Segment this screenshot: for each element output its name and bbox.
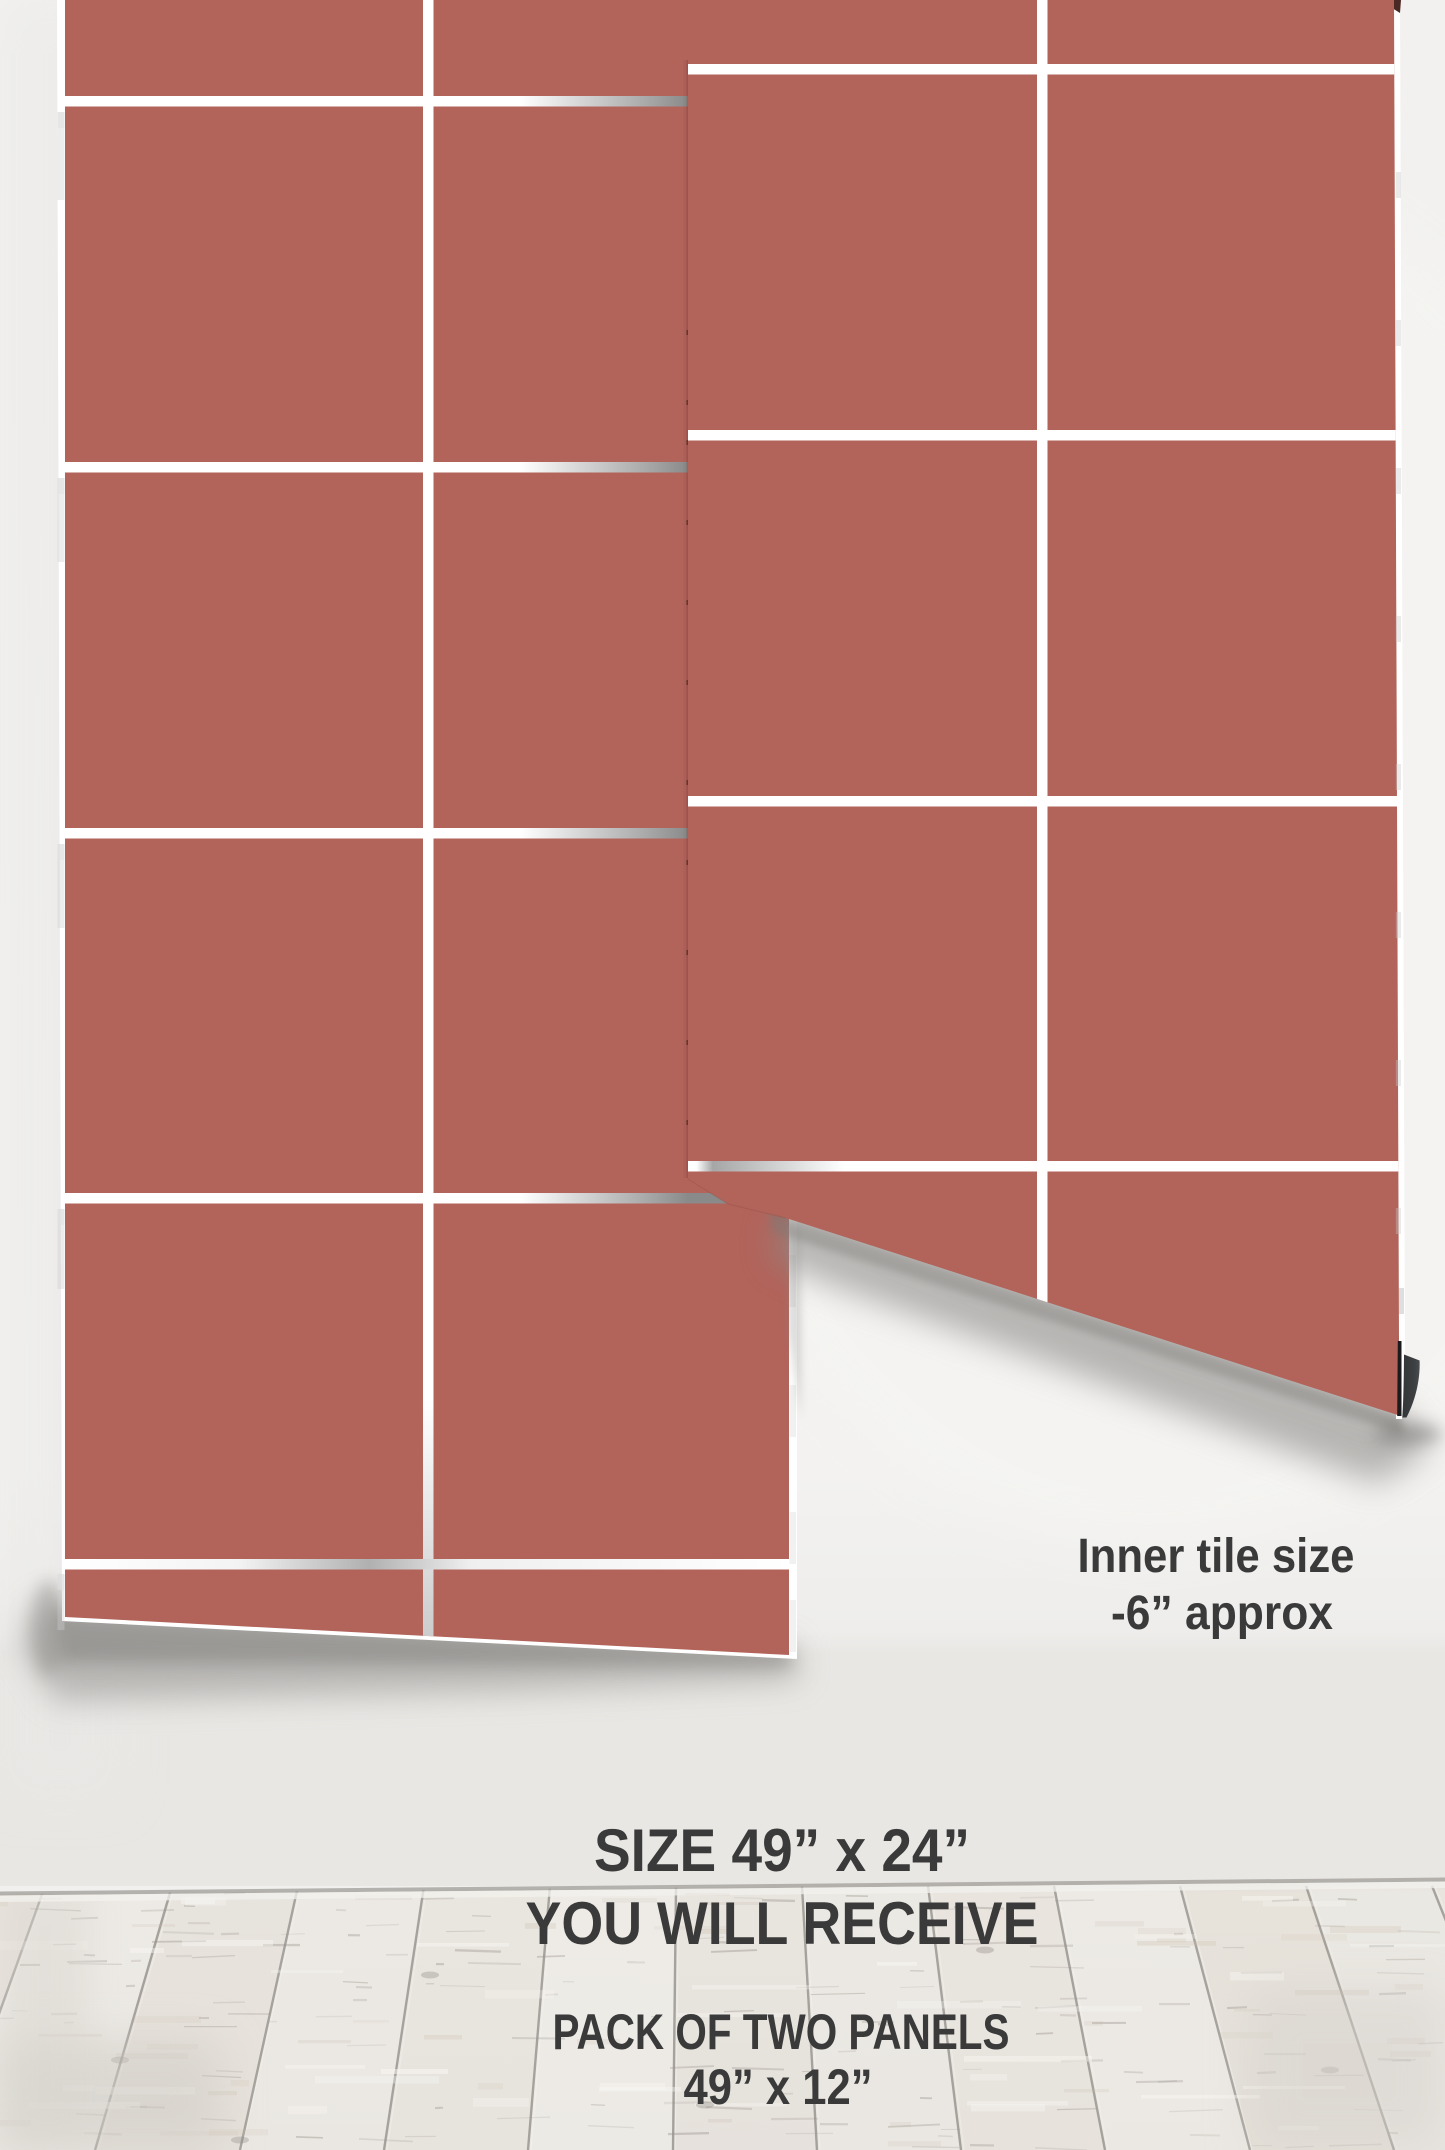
svg-text:SIZE 49” x 24”: SIZE 49” x 24”: [594, 1817, 970, 1884]
svg-text:49” x 12”: 49” x 12”: [684, 2059, 873, 2115]
svg-text:PACK OF TWO PANELS: PACK OF TWO PANELS: [553, 2004, 1010, 2060]
svg-text:Inner tile size: Inner tile size: [1078, 1530, 1355, 1583]
svg-text:YOU WILL RECEIVE: YOU WILL RECEIVE: [526, 1890, 1039, 1957]
svg-text:-6” approx: -6” approx: [1111, 1587, 1333, 1640]
